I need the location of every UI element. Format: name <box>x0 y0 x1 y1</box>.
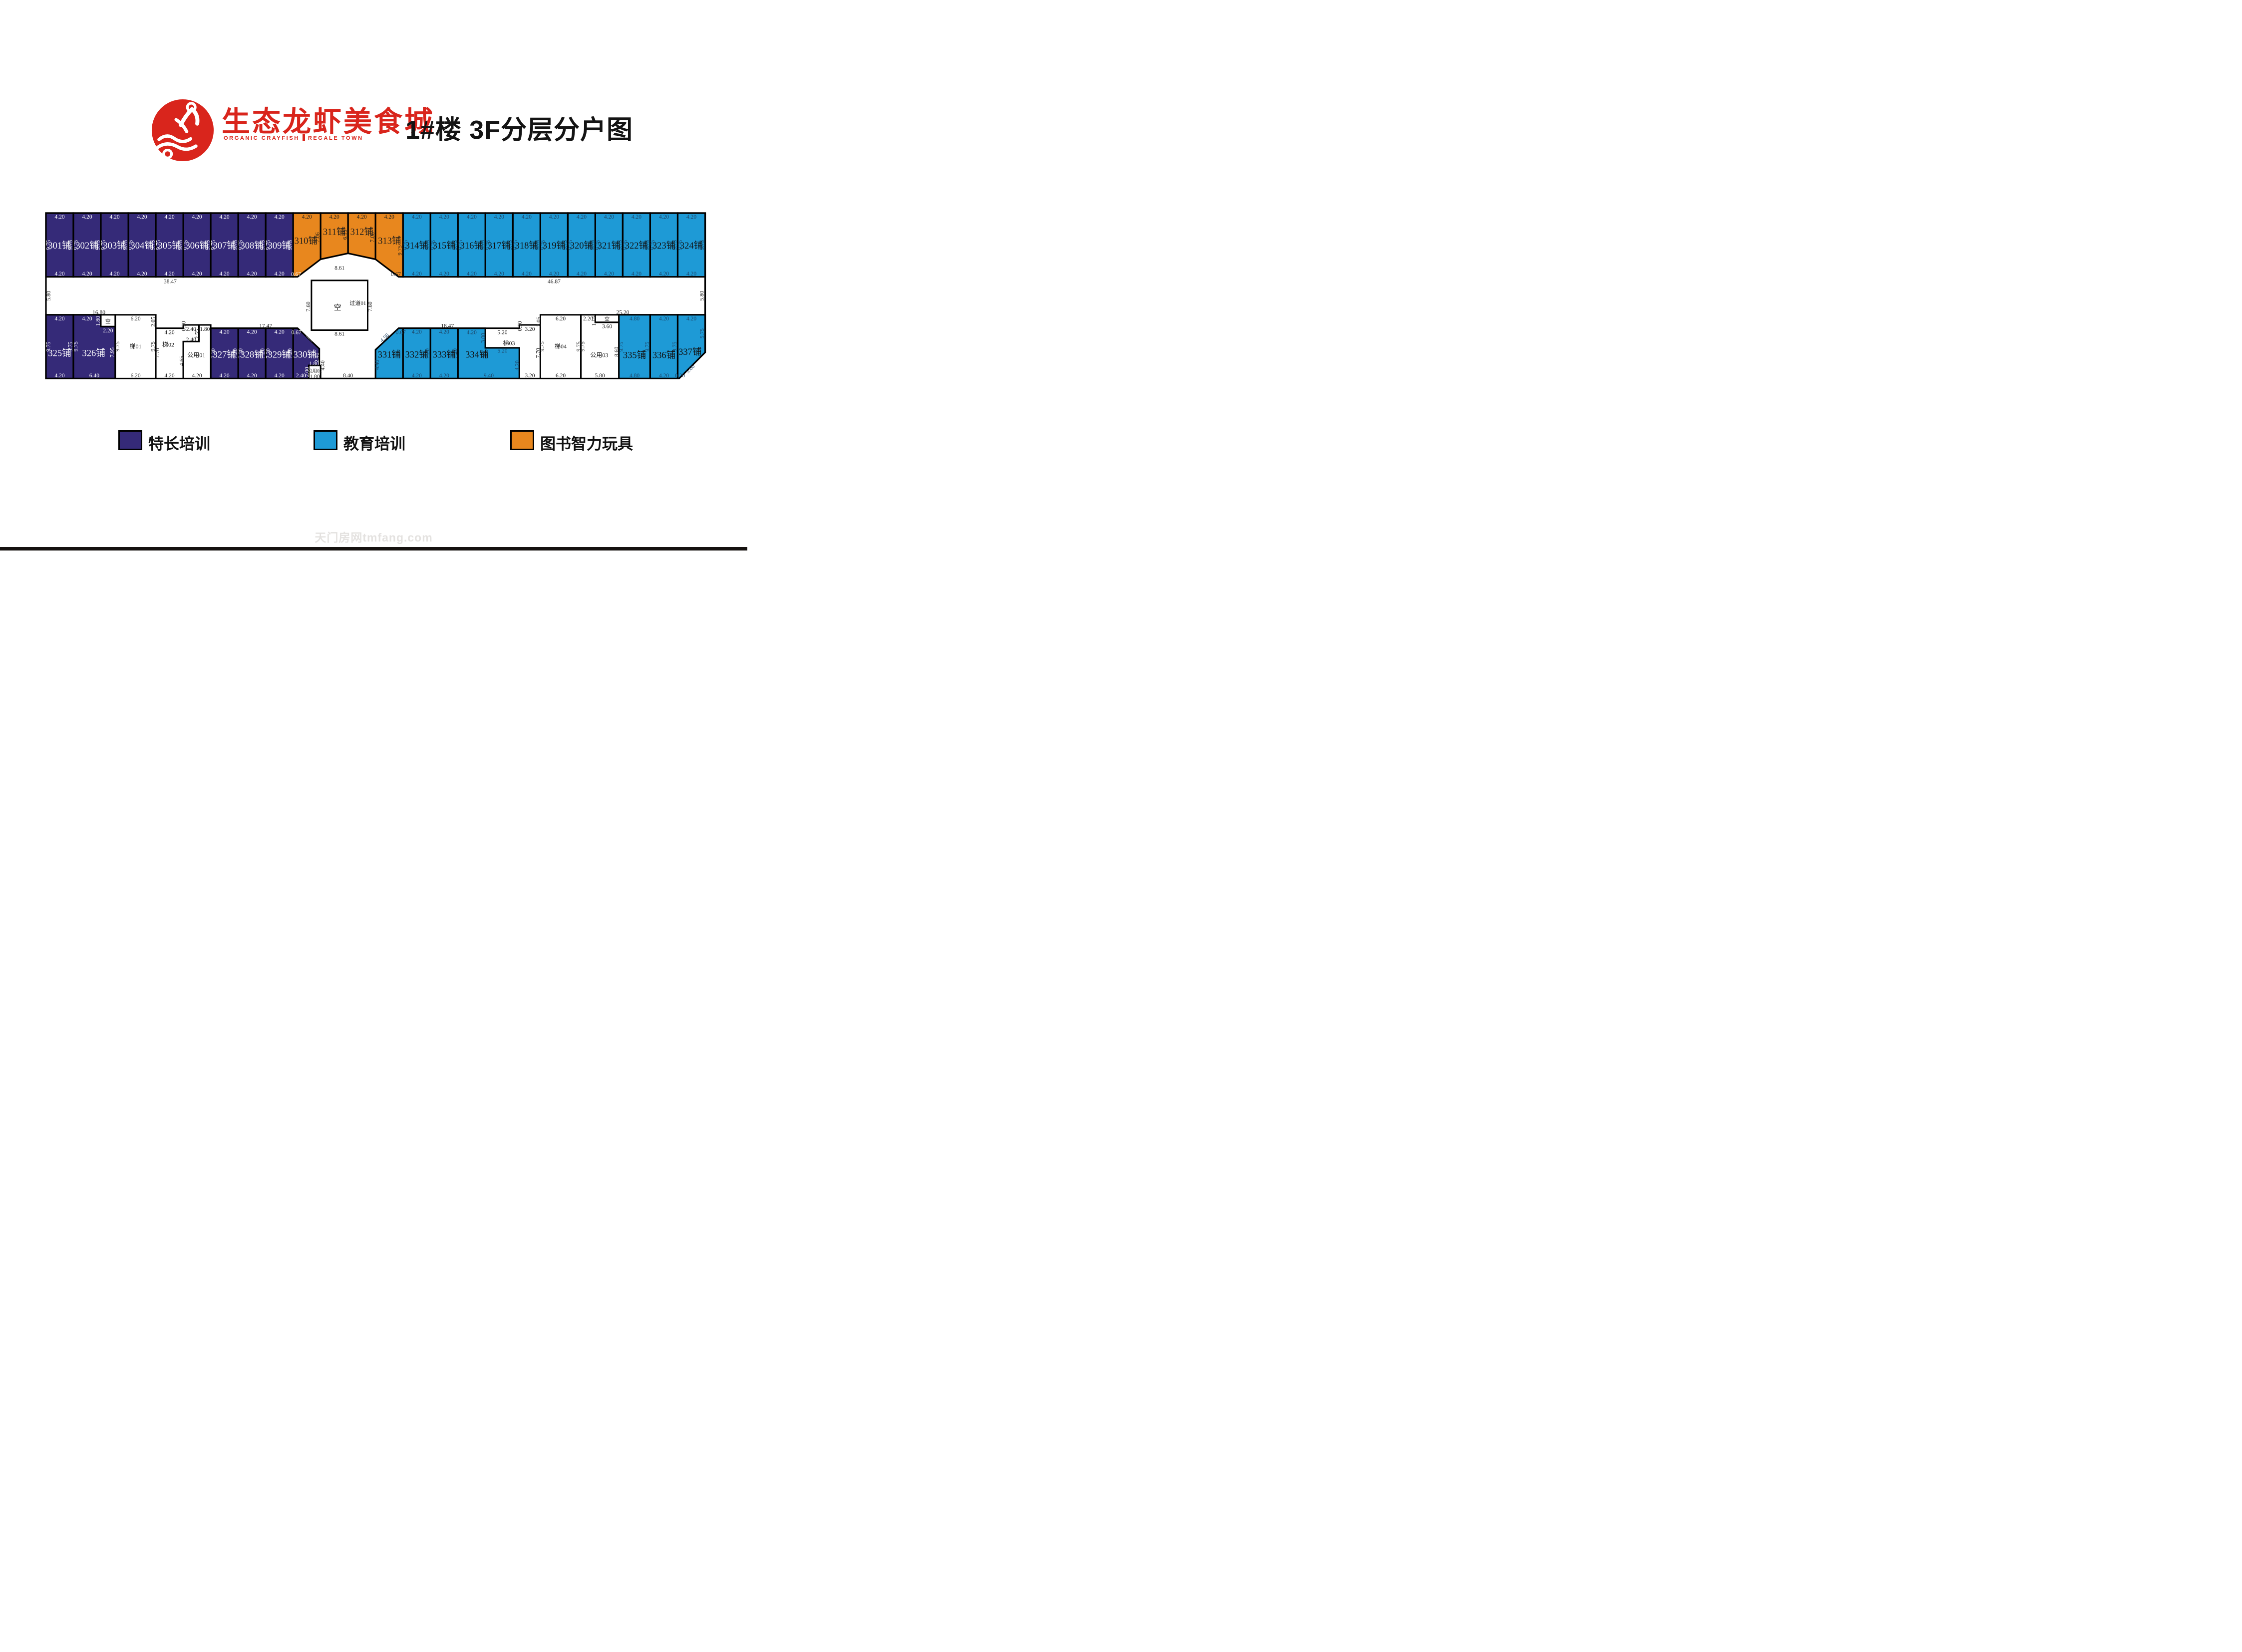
legend-label: 图书智力玩具 <box>540 431 633 454</box>
dim-label: 4.20 <box>515 360 521 370</box>
dim-label: 4.40 <box>374 360 380 370</box>
dim-label: 4.20 <box>522 214 532 220</box>
dim-label: 0.20 <box>675 373 685 379</box>
dim-label: 17.47 <box>259 323 272 329</box>
dim-label: 4.20 <box>192 271 202 277</box>
shop-label-306: 306铺 <box>185 241 208 251</box>
shop-label-318: 318铺 <box>515 241 538 251</box>
dim-label: 5.75 <box>699 328 705 338</box>
dim-label: 4.20 <box>165 214 175 220</box>
room-label-ti02: 梯02 <box>162 341 174 348</box>
shop-label-327: 327铺 <box>213 349 236 360</box>
dim-label: 4.20 <box>220 214 230 220</box>
dim-label: 0.67 <box>291 272 301 277</box>
dim-label: 4.20 <box>82 316 92 322</box>
dim-label: 4.20 <box>439 373 449 379</box>
dim-label: 4.20 <box>467 329 477 335</box>
dim-label: 4.20 <box>220 271 230 277</box>
bottom-bar <box>0 547 747 551</box>
dim-label: 1.15 <box>591 316 597 326</box>
dim-label: 4.20 <box>549 271 559 277</box>
dim-label: 3.20 <box>525 373 535 379</box>
shop-label-315: 315铺 <box>433 241 456 251</box>
dim-label: 6.20 <box>556 373 566 379</box>
crayfish-logo-icon <box>150 96 216 165</box>
dim-label: 4.20 <box>659 373 669 379</box>
dim-label: 5.20 <box>497 329 507 335</box>
dim-label: 4.20 <box>412 329 422 335</box>
dim-label: 7.60 <box>306 301 312 311</box>
dim-label: 9.75 <box>115 341 121 351</box>
shop-label-319: 319铺 <box>543 241 566 251</box>
dim-label: 9.75 <box>397 245 403 255</box>
room-label-kong-gy03: 空 <box>605 315 610 322</box>
shop-label-335: 335铺 <box>623 350 646 361</box>
room-label-guodao01: 空 <box>334 303 341 312</box>
dim-label: 5.80 <box>595 373 605 379</box>
dim-label: 4.20 <box>686 271 696 277</box>
dim-label: 4.20 <box>82 271 92 277</box>
dim-label: 4.20 <box>412 271 422 277</box>
floor-plan: 4.204.209.759.75301铺4.204.209.759.75302铺… <box>0 0 747 551</box>
shop-label-301: 301铺 <box>48 241 71 251</box>
dim-label: 4.20 <box>577 271 587 277</box>
dim-label: 9.75 <box>580 341 586 351</box>
dim-label: 18.47 <box>441 323 454 329</box>
logo-text-en: ORGANIC CRAYFISHREGALE TOWN <box>224 134 363 141</box>
legend-swatch-orange <box>510 430 534 450</box>
dim-label: 4.20 <box>494 271 504 277</box>
dim-label: 7.70 <box>155 348 161 358</box>
dim-label: 8.40 <box>343 373 353 379</box>
shop-label-334: 334铺 <box>465 349 488 360</box>
shop-label-323: 323铺 <box>652 241 675 251</box>
dim-label: 4.20 <box>329 214 339 220</box>
room-label-gongyong03: 公用03 <box>590 351 608 358</box>
dim-label: 4.20 <box>686 316 696 322</box>
dim-label: 4.80 <box>630 316 640 322</box>
shop-label-307: 307铺 <box>213 241 236 251</box>
dim-label: 7.06 <box>315 232 320 242</box>
shop-label-336: 336铺 <box>652 350 675 361</box>
room-label-guodao01: 过道01 <box>349 299 366 306</box>
legend-label: 教育培训 <box>343 431 405 454</box>
legend-swatch-blue <box>314 430 337 450</box>
dim-label: 4.20 <box>247 271 257 277</box>
dim-label: 4.20 <box>192 214 202 220</box>
dim-label: 4.20 <box>109 271 119 277</box>
dim-label: 5.80 <box>699 290 705 300</box>
dim-label: 4.20 <box>275 271 285 277</box>
dim-label: 8.61 <box>334 266 344 272</box>
dim-label: 4.20 <box>247 329 257 335</box>
dim-label: 4.20 <box>357 214 367 220</box>
dim-label: 2.40 <box>296 373 306 379</box>
dim-label: 4.20 <box>577 214 587 220</box>
dim-label: 4.20 <box>247 373 257 379</box>
dim-label: 2.05 <box>536 316 542 326</box>
dim-label: 6.20 <box>556 316 566 322</box>
shop-label-304: 304铺 <box>130 241 153 251</box>
shop-label-305: 305铺 <box>158 241 181 251</box>
dim-label: 4.20 <box>220 373 230 379</box>
shop-label-321: 321铺 <box>598 241 621 251</box>
legend-swatch-navy <box>118 430 142 450</box>
legend: 特长培训 教育培训 图书智力玩具 <box>0 429 747 455</box>
dim-label: 8.61 <box>334 331 344 337</box>
shop-label-333: 333铺 <box>433 349 456 360</box>
dim-label: 0.67 <box>391 272 401 277</box>
dim-label: 6.40 <box>89 373 99 379</box>
dim-label: 4.20 <box>192 373 202 379</box>
dim-label: 5.20 <box>497 348 507 354</box>
shop-label-332: 332铺 <box>405 349 428 360</box>
dim-label: 4.20 <box>467 271 477 277</box>
dim-label: 6.20 <box>130 316 140 322</box>
shop-label-308: 308铺 <box>240 241 263 251</box>
dim-label: 4.80 <box>630 373 640 379</box>
dim-label: 3.20 <box>525 326 535 332</box>
shop-label-329: 329铺 <box>268 349 291 360</box>
shop-label-322: 322铺 <box>625 241 648 251</box>
room-label-ti01: 梯01 <box>129 343 141 350</box>
room-label-ti04: 梯04 <box>555 343 567 350</box>
dim-label: 4.20 <box>247 214 257 220</box>
dim-label: 8.60 <box>614 346 620 356</box>
dim-label: 4.65 <box>179 356 185 366</box>
shop-label-326: 326铺 <box>82 348 105 359</box>
dim-label: 1.80 <box>200 326 210 332</box>
shop-label-324: 324铺 <box>680 241 703 251</box>
dim-label: 6.20 <box>130 373 140 379</box>
dim-label: 38.47 <box>164 279 177 285</box>
dim-label: 4.20 <box>220 329 230 335</box>
dim-label: 1.80 <box>309 361 319 367</box>
dim-label: 4.20 <box>467 214 477 220</box>
dim-label: 4.20 <box>522 271 532 277</box>
dim-label: 9.75 <box>540 341 546 351</box>
dim-label: 3.60 <box>602 323 612 329</box>
dim-label: 4.20 <box>54 271 64 277</box>
shop-label-337: 337铺 <box>678 347 701 357</box>
dim-label: 25.20 <box>616 309 629 315</box>
shop-label-302: 302铺 <box>75 241 98 251</box>
dim-label: 9.75 <box>73 341 79 351</box>
dim-label: 4.20 <box>659 316 669 322</box>
shop-label-331: 331铺 <box>378 349 401 360</box>
dim-label: 0.67 <box>396 329 406 335</box>
dim-label: 4.20 <box>439 329 449 335</box>
dim-label: 4.20 <box>165 373 175 379</box>
dim-label: 2.20 <box>103 328 113 334</box>
room-gongyong03 <box>581 315 619 379</box>
dim-label: 7.60 <box>367 301 373 311</box>
dim-label: 4.40 <box>320 360 326 370</box>
page-title: 1#楼 3F分层分户图 <box>405 109 633 146</box>
watermark: 天门房网tmfang.com <box>0 528 747 545</box>
dim-label: 1.80 <box>95 316 101 326</box>
shop-label-309: 309铺 <box>268 241 291 251</box>
dim-label: 9.40 <box>484 373 494 379</box>
dim-label: 4.20 <box>137 271 147 277</box>
legend-label: 特长培训 <box>148 431 210 454</box>
shop-label-320: 320铺 <box>570 241 593 251</box>
room-label-gongyong01: 公用01 <box>187 351 205 358</box>
dim-label: 2.05 <box>151 316 157 326</box>
dim-label: 4.20 <box>54 214 64 220</box>
dim-label: 6.15 <box>342 230 348 240</box>
dim-label: 2.40 <box>186 337 196 343</box>
shop-label-316: 316铺 <box>460 241 483 251</box>
dim-label: 4.20 <box>549 214 559 220</box>
shop-label-313: 313铺 <box>378 236 401 246</box>
dim-label: 4.20 <box>275 373 285 379</box>
dim-label: 4.20 <box>494 214 504 220</box>
shop-label-317: 317铺 <box>488 241 511 251</box>
dim-label: 4.20 <box>137 214 147 220</box>
dim-label: 4.20 <box>82 214 92 220</box>
shop-label-314: 314铺 <box>405 241 428 251</box>
dim-label: 7.06 <box>369 232 375 242</box>
dim-label: 4.20 <box>439 214 449 220</box>
dim-label: 4.20 <box>412 214 422 220</box>
dim-label: 4.20 <box>275 214 285 220</box>
room-label-ti03: 梯03 <box>503 340 515 347</box>
dim-label: 4.20 <box>659 214 669 220</box>
dim-label: 4.20 <box>384 214 394 220</box>
dim-label: 5.80 <box>46 290 52 300</box>
dim-label: 4.20 <box>632 271 641 277</box>
shop-label-328: 328铺 <box>240 349 263 360</box>
dim-label: 4.20 <box>275 329 285 335</box>
dim-label: 1.80 <box>310 374 320 380</box>
dim-label: 4.20 <box>412 373 422 379</box>
dim-label: 4.20 <box>686 214 696 220</box>
dim-label: 4.20 <box>165 271 175 277</box>
dim-label: 0.50 <box>517 321 523 331</box>
dim-label: 3.00 <box>480 333 486 343</box>
dim-label: 4.20 <box>439 271 449 277</box>
dim-label: 0.67 <box>292 329 302 335</box>
dim-label: 4.20 <box>302 214 312 220</box>
dim-label: 46.87 <box>548 279 561 285</box>
dim-label: 16.80 <box>92 309 105 315</box>
dim-label: 4.20 <box>54 373 64 379</box>
dim-label: 4.20 <box>54 316 64 322</box>
dim-label: 4.20 <box>632 214 641 220</box>
shop-label-330: 330铺 <box>294 349 317 360</box>
dim-label: 4.20 <box>604 214 614 220</box>
room-label-kong-326: 空 <box>105 318 111 325</box>
shop-label-325: 325铺 <box>48 348 71 359</box>
dim-label: 4.20 <box>109 214 119 220</box>
shop-label-310: 310铺 <box>295 236 318 246</box>
logo-text-en1: ORGANIC CRAYFISH <box>224 135 300 141</box>
logo-divider <box>303 134 305 141</box>
dim-label: 4.20 <box>604 271 614 277</box>
shop-label-303: 303铺 <box>103 241 126 251</box>
dim-label: 4.20 <box>165 329 175 335</box>
logo-text-en2: REGALE TOWN <box>308 135 363 141</box>
dim-label: 4.20 <box>659 271 669 277</box>
